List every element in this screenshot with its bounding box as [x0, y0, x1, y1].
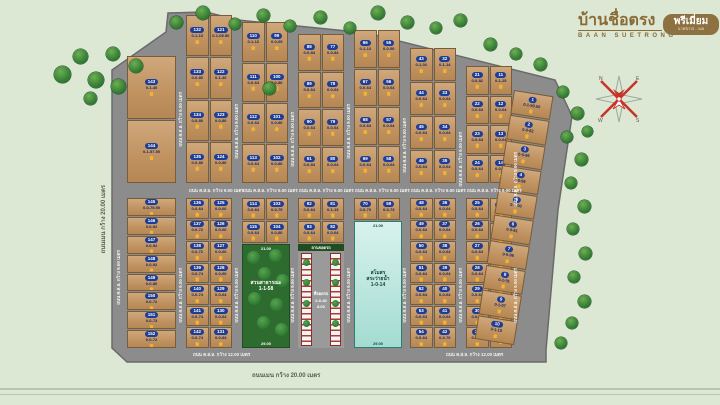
lot-number-badge[interactable]: 123 [214, 112, 228, 118]
lot-area-label[interactable]: 0-0-80 [271, 162, 283, 167]
lot-area-label[interactable]: 0-1-40 [215, 76, 227, 81]
lot-area-label[interactable]: 0-0-82 [471, 79, 483, 84]
parking-area[interactable]: ลานจอดรถที่จอดรถ0-0-408.00 [298, 244, 344, 348]
house-icon[interactable] [218, 342, 223, 347]
lot[interactable]: 1290-0-64 [210, 284, 233, 305]
lot-area-label[interactable]: 0-0-64 [471, 108, 483, 113]
lot-block-lower[interactable]: 1360-0-641370-0-721380-0-721390-0-741400… [186, 198, 232, 348]
lot[interactable]: 110-1-25 [490, 66, 513, 95]
lot[interactable]: 450-0-64 [410, 116, 433, 149]
lot[interactable]: 1280-0-60 [210, 263, 233, 284]
tree-icon[interactable] [371, 6, 385, 20]
lot-column[interactable]: 1450-0-75.501460-0-921470-0-921480-0-921… [127, 198, 176, 348]
lot-area-label[interactable]: 0-0-64 [247, 162, 259, 167]
lot[interactable]: 550-0-90 [378, 30, 401, 68]
house-icon[interactable] [195, 212, 200, 217]
lot-area-label[interactable]: 0-0-64 [471, 167, 483, 172]
tree-icon[interactable] [344, 22, 356, 34]
lot[interactable]: 420-0-70 [434, 327, 457, 348]
road-label-concrete-9[interactable]: ถนน ค.ส.ล. กว้าง 9.00 เมตร [299, 188, 354, 193]
lot[interactable]: 430-1-02 [410, 48, 433, 81]
park-dim-bottom[interactable]: 29.00 [243, 341, 289, 346]
road-label-concrete-9[interactable]: ถนน ค.ส.ล. กว้าง 9.00 เมตร [290, 112, 295, 167]
lot-area-label[interactable]: 0-0-80 [191, 119, 203, 124]
lot-column[interactable]: 1250-0-601260-0-601270-0-601280-0-601290… [210, 198, 233, 348]
tree-icon[interactable] [263, 82, 276, 95]
lot[interactable]: 1230-0-80 [210, 100, 233, 141]
lot[interactable]: 1240-0-80 [210, 142, 233, 183]
house-icon[interactable] [218, 40, 223, 45]
road-label-concrete-9[interactable]: ถนน ค.ส.ล. กว้าง 9.00 เมตร [346, 268, 351, 323]
lot-column[interactable]: 590-0-73 [378, 198, 401, 220]
tree-icon[interactable] [579, 247, 592, 260]
lot[interactable]: 240-0-64 [466, 155, 489, 184]
road-label-concrete-9[interactable]: ถนน ค.ส.ล. กว้าง 9.00 เมตร [178, 268, 183, 323]
house-icon[interactable] [419, 299, 424, 304]
lot-column[interactable]: 770-0-84780-0-64790-0-64800-0-64 [322, 34, 345, 183]
house-icon[interactable] [330, 213, 335, 218]
house-icon[interactable] [274, 167, 279, 172]
tree-icon[interactable] [284, 20, 296, 32]
lot-block-lower[interactable]: 700-0-73590-0-73สโมสรสระว่ายน้ำ1-0-1421.… [354, 198, 400, 348]
house-icon[interactable] [330, 131, 335, 136]
road-label-concrete-9[interactable]: ถนน ค.ส.ล. กว้าง 9.00 เมตร [243, 188, 298, 193]
lot-area-label[interactable]: 0-0-73 [359, 208, 371, 213]
lot-column[interactable]: 660-1-13670-0-64680-0-64690-0-64 [354, 30, 377, 183]
lot-area-label[interactable]: 0-0-74 [191, 293, 203, 298]
lot-number-badge[interactable]: 102 [270, 155, 284, 161]
tree-icon[interactable] [510, 48, 522, 60]
lot[interactable]: 680-0-64 [354, 107, 377, 145]
lot-area-label[interactable]: 0-0-75.50 [143, 206, 160, 211]
lot-area-label[interactable]: 0-0-64 [303, 208, 315, 213]
house-icon[interactable] [307, 169, 312, 174]
lot-area-label[interactable]: 0-1-13 [359, 47, 371, 52]
house-icon[interactable] [475, 84, 480, 89]
lot-area-label[interactable]: 0-0-96 [502, 253, 514, 259]
lot-area-label[interactable]: 0-0-64 [471, 138, 483, 143]
house-icon[interactable] [475, 114, 480, 119]
lot-area-label[interactable]: 0-0-81 [506, 228, 518, 234]
road-label-concrete-9[interactable]: ถนน ค.ส.ล. กว้าง 9.00 เมตร [355, 188, 410, 193]
lot-area-label[interactable]: 0-0-64 [415, 97, 427, 102]
lot-area-label[interactable]: 0-1-57.50 [143, 150, 160, 155]
tree-icon[interactable] [430, 22, 442, 34]
lot-area-label[interactable]: 0-0-92 [146, 244, 158, 249]
park-label[interactable]: สวนสาธารณะ1-1-58 [243, 280, 289, 292]
lot-area-label[interactable]: 0-0-64 [247, 81, 259, 86]
lot-area-label[interactable]: 0-0-64 [359, 163, 371, 168]
lot-area-label[interactable]: 0-0-60 [215, 250, 227, 255]
house-icon[interactable] [218, 320, 223, 325]
lot-area-label[interactable]: 0-0-92 [146, 225, 158, 230]
house-icon[interactable] [419, 342, 424, 347]
house-icon[interactable] [330, 169, 335, 174]
house-icon[interactable] [251, 127, 256, 132]
house-icon[interactable] [419, 137, 424, 142]
lot-area-label[interactable]: 0-0-60 [215, 272, 227, 277]
lot-area-label[interactable]: 0-1-05.50 [212, 34, 229, 39]
lot-number-badge[interactable]: 125 [214, 200, 228, 206]
lot-block-lower[interactable]: 920-0-64930-0-64810-1-13820-0-64ลานจอดรถ… [298, 198, 344, 348]
lot-number-badge[interactable]: 51 [416, 265, 427, 271]
lot-area-label[interactable]: 0-0-70 [439, 336, 451, 341]
lot[interactable]: 540-0-64 [410, 327, 433, 348]
road-label-concrete-12[interactable]: ถนน ค.ส.ล. กว้าง 12.00 เมตร [446, 352, 503, 357]
lot[interactable]: 1010-0-80 [266, 103, 289, 143]
lot-area-label[interactable]: 0-0-64 [439, 165, 451, 170]
parking-dim[interactable]: 8.00 [317, 304, 325, 309]
lot-area-label[interactable]: 0-1-10 [490, 328, 502, 334]
house-icon[interactable] [442, 137, 447, 142]
tree-icon[interactable] [229, 18, 241, 30]
lot[interactable]: 580-0-64 [378, 146, 401, 184]
lot[interactable]: 560-0-64 [378, 69, 401, 107]
lot-column[interactable]: 880-0-84890-0-64900-0-64910-0-84 [298, 34, 321, 183]
lot-area-label[interactable]: 0-0-90 [383, 47, 395, 52]
lot[interactable]: 500-0-64 [410, 241, 433, 262]
lot-number-badge[interactable]: 69 [360, 156, 371, 162]
lot-area-label[interactable]: 0-0-72 [146, 300, 158, 305]
lot-number-badge[interactable]: 128 [214, 265, 228, 271]
house-icon[interactable] [419, 171, 424, 176]
lot[interactable]: 1400-0-74 [186, 284, 209, 305]
house-icon[interactable] [386, 168, 391, 173]
house-icon[interactable] [528, 109, 534, 114]
house-icon[interactable] [218, 124, 223, 129]
tree-icon[interactable] [314, 11, 327, 24]
lot[interactable]: 890-0-64 [298, 72, 321, 109]
house-icon[interactable] [520, 159, 526, 164]
park-tree-icon[interactable] [257, 316, 270, 329]
lot[interactable]: 590-0-73 [378, 198, 401, 220]
lot-area-label[interactable]: 0-0-64 [471, 228, 483, 233]
parking-tree-icon[interactable] [332, 300, 339, 307]
house-icon[interactable] [419, 212, 424, 217]
lot-area-label[interactable]: 0-0-64 [415, 250, 427, 255]
parking-tree-icon[interactable] [332, 320, 339, 327]
lot[interactable]: 370-0-64 [434, 220, 457, 241]
lot-number-badge[interactable]: 58 [383, 156, 394, 162]
lot[interactable]: 1460-0-92 [127, 217, 176, 235]
house-icon[interactable] [195, 166, 200, 171]
lot[interactable]: 440-0-64 [410, 82, 433, 115]
lot[interactable]: 820-0-64 [322, 221, 345, 243]
house-icon[interactable] [218, 299, 223, 304]
lot[interactable]: 380-0-64 [434, 241, 457, 262]
lot-column[interactable]: 1320-1-131330-0-801340-0-801350-0-80 [186, 15, 209, 183]
lot-area-label[interactable]: 0-0-64 [439, 228, 451, 233]
house-icon[interactable] [330, 94, 335, 99]
house-icon[interactable] [419, 320, 424, 325]
clubhouse-area[interactable]: สโมสรสระว่ายน้ำ1-0-1421.0029.00 [354, 221, 402, 348]
road-label-concrete-9[interactable]: ถนน ค.ส.ล. กว้าง 9.00 เมตร [458, 268, 463, 323]
lot[interactable]: 1100-1-13 [242, 22, 265, 62]
tree-icon[interactable] [401, 16, 414, 29]
house-icon[interactable] [149, 249, 154, 252]
house-icon[interactable] [492, 334, 498, 339]
lot-area-label[interactable]: 0-0-64 [215, 293, 227, 298]
tree-icon[interactable] [534, 58, 547, 71]
road-label-concrete-9[interactable]: ถนน ค.ส.ล. กว้าง 9.00 เมตร [234, 268, 239, 323]
tree-icon[interactable] [575, 153, 588, 166]
lot-area-label[interactable]: 0-0-64 [439, 293, 451, 298]
lot-area-label[interactable]: 0-1-07 [494, 303, 506, 309]
lot[interactable]: 700-0-73 [354, 198, 377, 220]
lot[interactable]: 1510-0-73 [127, 311, 176, 329]
lot-area-label[interactable]: 0-0-64 [471, 250, 483, 255]
lot[interactable]: 1150-0-64 [242, 221, 265, 243]
lot-area-label[interactable]: 0-0-60 [215, 207, 227, 212]
lot[interactable]: 1320-1-13 [186, 15, 209, 56]
lot-area-label[interactable]: 0-0-82 [522, 128, 534, 134]
club-label-line[interactable]: 1-0-14 [355, 282, 401, 288]
tree-icon[interactable] [565, 177, 577, 189]
lot-number-badge[interactable]: 111 [247, 74, 260, 80]
lot[interactable]: 490-0-64 [410, 220, 433, 241]
lot[interactable]: 780-0-64 [322, 72, 345, 109]
tree-icon[interactable] [454, 14, 467, 27]
lot[interactable]: 1520-0-72 [127, 330, 176, 348]
lot-area-label[interactable]: 0-0-80 [146, 282, 158, 287]
lot[interactable]: 270-0-64 [466, 241, 489, 262]
lot[interactable]: 1450-0-75.50 [127, 198, 176, 216]
lot-column[interactable]: 550-0-90560-0-64570-0-64580-0-64 [378, 30, 401, 183]
house-icon[interactable] [149, 325, 154, 328]
house-icon[interactable] [442, 103, 447, 108]
house-icon[interactable] [363, 91, 368, 96]
lot-area-label[interactable]: 0-0-64 [471, 207, 483, 212]
house-icon[interactable] [251, 86, 256, 91]
lot[interactable]: 1270-0-60 [210, 241, 233, 262]
lot[interactable]: 660-1-13 [354, 30, 377, 68]
lot-area-label[interactable]: 0-0-72 [191, 250, 203, 255]
house-icon[interactable] [274, 236, 279, 241]
road-label-concrete-9[interactable]: ถนน ค.ส.ล. กว้าง 9.00 เมตร [402, 118, 407, 173]
lot[interactable]: 770-0-84 [322, 34, 345, 71]
house-icon[interactable] [218, 234, 223, 239]
lot[interactable]: 790-0-64 [322, 109, 345, 146]
parking-tree-icon[interactable] [303, 279, 310, 286]
lot-column[interactable]: 1210-1-05.501220-1-401230-0-801240-0-80 [210, 15, 233, 183]
lot-number-badge[interactable]: 59 [383, 201, 394, 207]
house-icon[interactable] [363, 213, 368, 218]
house-icon[interactable] [218, 255, 223, 260]
lot-area-label[interactable]: 0-0-92 [146, 263, 158, 268]
house-icon[interactable] [149, 230, 154, 233]
house-icon[interactable] [307, 213, 312, 218]
lot[interactable]: 1260-0-60 [210, 220, 233, 241]
lot-column[interactable]: 320-1-14330-0-64340-0-64350-0-64 [434, 48, 457, 183]
lot-area-label[interactable]: 0-0-60 [215, 228, 227, 233]
lot-number-badge[interactable]: 36 [439, 200, 450, 206]
lot[interactable]: 330-0-64 [434, 82, 457, 115]
lot-area-label[interactable]: 0-0-64 [383, 163, 395, 168]
lot-number-badge[interactable]: 147 [145, 237, 159, 243]
house-icon[interactable] [363, 53, 368, 58]
house-icon[interactable] [386, 213, 391, 218]
lot[interactable]: 250-0-64 [466, 198, 489, 219]
house-icon[interactable] [251, 213, 256, 218]
lot-number-badge[interactable]: 23 [472, 131, 483, 137]
lot-area-label[interactable]: 0-0-65 [271, 40, 283, 45]
tree-icon[interactable] [257, 9, 270, 22]
lot[interactable]: 220-0-64 [466, 96, 489, 125]
house-icon[interactable] [218, 82, 223, 87]
lot-area-label[interactable]: 0-0-74 [191, 336, 203, 341]
lot[interactable]: 1110-0-64 [242, 63, 265, 103]
lot-number-badge[interactable]: 104 [270, 224, 284, 230]
house-icon[interactable] [475, 173, 480, 178]
lot-block-upper[interactable]: 880-0-84890-0-64900-0-64910-0-84770-0-84… [298, 34, 344, 183]
parking-tree-icon[interactable] [303, 300, 310, 307]
lot-area-label[interactable]: 0-0-64 [247, 121, 259, 126]
park-area[interactable]: สวนสาธารณะ1-1-5821.0029.00 [242, 244, 290, 348]
house-icon[interactable] [195, 320, 200, 325]
lot-number-badge[interactable]: 28 [472, 265, 483, 271]
lot-area-label[interactable]: 0-0-64 [215, 315, 227, 320]
lot-area-label[interactable]: 0-0-64 [327, 163, 339, 168]
house-icon[interactable] [363, 168, 368, 173]
lot-area-label[interactable]: 0-0-64 [415, 315, 427, 320]
lot-number-badge[interactable]: 39 [439, 265, 450, 271]
house-icon[interactable] [442, 234, 447, 239]
lot[interactable]: 320-1-14 [434, 48, 457, 81]
lot-area-label[interactable]: 0-0-64 [439, 272, 451, 277]
lot-area-label[interactable]: 0-0-80 [271, 121, 283, 126]
lot[interactable]: 1490-0-80 [127, 274, 176, 292]
house-icon[interactable] [386, 53, 391, 58]
lot[interactable]: 1350-0-80 [186, 142, 209, 183]
road-label-concrete-9[interactable]: ถนน ค.ส.ล. กว้าง 9.00 เมตร [189, 188, 244, 193]
lot-area-label[interactable]: 0-0-64 [415, 272, 427, 277]
lot-area-label[interactable]: 0-1-13 [191, 34, 203, 39]
lot-column[interactable]: 1360-0-641370-0-721380-0-721390-0-741400… [186, 198, 209, 348]
house-icon[interactable] [218, 166, 223, 171]
house-icon[interactable] [386, 91, 391, 96]
house-icon[interactable] [442, 277, 447, 282]
lot[interactable]: 260-0-64 [466, 220, 489, 241]
house-icon[interactable] [500, 284, 506, 289]
lot[interactable]: 1390-0-74 [186, 263, 209, 284]
lot-area-label[interactable]: 0-0-64 [415, 131, 427, 136]
tree-icon[interactable] [568, 271, 580, 283]
park-tree-icon[interactable] [248, 292, 261, 305]
lot-area-label[interactable]: 0-0-75 [271, 208, 283, 213]
lot[interactable]: 1220-1-40 [210, 57, 233, 98]
house-icon[interactable] [475, 342, 480, 347]
road-label-concrete-9[interactable]: ถนน ค.ส.ล. กว้าง 9.00 เมตร [234, 104, 239, 159]
lot-block-lower[interactable]: 1140-0-641150-0-641030-0-751040-0-80สวนส… [242, 198, 288, 348]
road-label-concrete-9[interactable]: ถนน ค.ส.ล. กว้าง 9.00 เมตร [116, 250, 121, 305]
house-icon[interactable] [498, 143, 503, 148]
lot[interactable]: 1360-0-64 [186, 198, 209, 219]
parking-label[interactable]: ที่จอดรถ0-0-408.00 [312, 253, 330, 346]
house-icon[interactable] [512, 209, 518, 214]
lot-area-label[interactable]: 0-0-64 [327, 231, 339, 236]
lot-block-partial[interactable]: 700-0-73590-0-73 [354, 198, 400, 220]
tree-icon[interactable] [555, 337, 567, 349]
lot[interactable]: 900-0-64 [298, 109, 321, 146]
lot-area-label[interactable]: 0-1-13 [247, 40, 259, 45]
lot[interactable]: 350-0-64 [434, 150, 457, 183]
tree-icon[interactable] [484, 38, 497, 51]
tree-icon[interactable] [73, 49, 88, 64]
lot[interactable]: 480-0-64 [410, 198, 433, 219]
tree-icon[interactable] [54, 66, 71, 83]
lot-number-badge[interactable]: 100 [270, 74, 284, 80]
lot-area-label[interactable]: 0-0-64 [383, 124, 395, 129]
lot-area-label[interactable]: 0-1-01 [498, 278, 510, 284]
lot[interactable]: 1440-1-57.50 [127, 120, 176, 183]
lot-area-label[interactable]: 0-0-64 [415, 228, 427, 233]
lot-number-badge[interactable]: 92 [304, 201, 315, 207]
lot[interactable]: 910-0-84 [298, 147, 321, 184]
lot-block-upper[interactable]: 1430-1-401440-1-57.50 [127, 56, 176, 183]
lot[interactable]: 230-0-64 [466, 125, 489, 154]
house-icon[interactable] [475, 143, 480, 148]
lot[interactable]: 920-0-64 [298, 198, 321, 220]
lot-number-badge[interactable]: 53 [416, 308, 427, 314]
lot-block-lower[interactable]: 480-0-64490-0-64500-0-64510-0-64520-0-64… [410, 198, 456, 348]
house-icon[interactable] [442, 255, 447, 260]
lot-area-label[interactable]: 0-0-72 [146, 338, 158, 343]
house-icon[interactable] [195, 82, 200, 87]
tree-icon[interactable] [557, 86, 569, 98]
lot-number-badge[interactable]: 90 [304, 119, 315, 125]
lot-area-label[interactable]: 0-0-72 [191, 228, 203, 233]
house-icon[interactable] [419, 255, 424, 260]
lot-area-label[interactable]: 0-0-64 [247, 208, 259, 213]
lot-column[interactable]: 920-0-64930-0-64 [298, 198, 321, 243]
lot-column[interactable]: 210-0-82220-0-64230-0-64240-0-64 [466, 66, 489, 183]
tree-icon[interactable] [571, 107, 584, 120]
house-icon[interactable] [218, 212, 223, 217]
lot-number-badge[interactable]: 136 [190, 200, 204, 206]
parking-tree-icon[interactable] [332, 259, 339, 266]
lot-number-badge[interactable]: 67 [360, 79, 371, 85]
tree-icon[interactable] [561, 131, 573, 143]
lot-area-label[interactable]: 0-0-64 [415, 336, 427, 341]
lot-block-upper[interactable]: 660-1-13670-0-64680-0-64690-0-64550-0-90… [354, 30, 400, 183]
tree-icon[interactable] [88, 72, 104, 88]
lot-area-label[interactable]: 0-0-64 [439, 131, 451, 136]
house-icon[interactable] [475, 277, 480, 282]
lot-number-badge[interactable]: 88 [304, 44, 315, 50]
house-icon[interactable] [274, 46, 279, 51]
lot-area-label[interactable]: 0-1-50.50 [523, 102, 541, 109]
tree-icon[interactable] [106, 47, 120, 61]
lot-column[interactable]: 480-0-64490-0-64500-0-64510-0-64520-0-64… [410, 198, 433, 348]
road-label-concrete-9[interactable]: ถนน ค.ส.ล. กว้าง 9.00 เมตร [467, 188, 522, 193]
lot[interactable]: 1470-0-92 [127, 236, 176, 254]
lot-area-label[interactable]: 0-1-25 [495, 79, 507, 84]
lot[interactable]: 810-1-13 [322, 198, 345, 220]
tree-icon[interactable] [578, 295, 591, 308]
house-icon[interactable] [307, 56, 312, 61]
lot-area-label[interactable]: 0-0-64 [415, 165, 427, 170]
road-label-concrete-12[interactable]: ถนน ค.ส.ล. กว้าง 12.00 เมตร [193, 352, 250, 357]
lot-column[interactable]: 1030-0-751040-0-80 [266, 198, 289, 243]
parking-tree-icon[interactable] [303, 320, 310, 327]
lot[interactable]: 1380-0-72 [186, 241, 209, 262]
road-label-concrete-9[interactable]: ถนน ค.ส.ล. กว้าง 9.00 เมตร [402, 268, 407, 323]
lot-area-label[interactable]: 0-0-64 [415, 293, 427, 298]
lot-column[interactable]: 1100-1-131110-0-641120-0-641130-0-64 [242, 22, 265, 183]
lot[interactable]: 210-0-82 [466, 66, 489, 95]
lot[interactable]: 690-0-64 [354, 146, 377, 184]
park-tree-icon[interactable] [247, 251, 260, 264]
